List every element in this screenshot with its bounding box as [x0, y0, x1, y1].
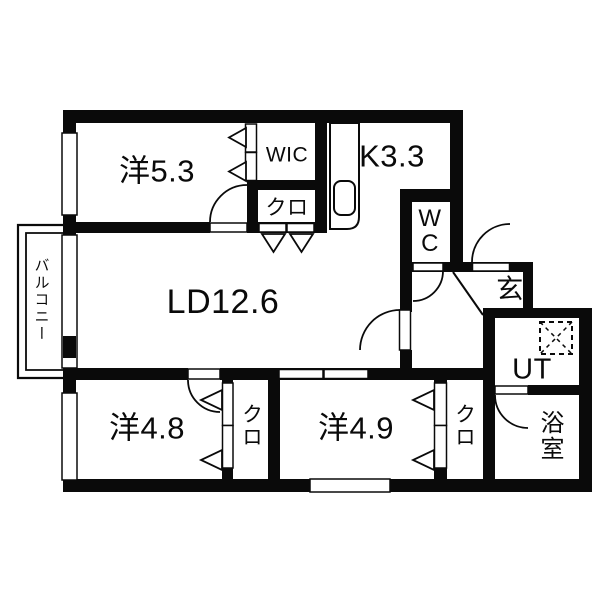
door-arc-bedroom53 — [210, 185, 247, 222]
door-arc-wc — [413, 271, 443, 301]
sliding-panel-closet-top-1 — [259, 224, 286, 233]
room-label-bathroom: 浴室 — [537, 410, 561, 462]
genkan-step-line — [453, 272, 483, 315]
room-label-utility: UT — [512, 356, 552, 385]
door-leaf-entrance — [473, 263, 510, 271]
arrow-closet49-2 — [413, 450, 434, 470]
sliding-leaf-closet49-1 — [435, 383, 447, 426]
sliding-panel-closet-top-2 — [287, 224, 314, 233]
window-bedroom53 — [62, 133, 77, 215]
wall-utility-bath-divider — [528, 385, 579, 395]
sliding-leaf-wic-1 — [246, 124, 257, 152]
room-label-balcony: バルコニー — [34, 258, 49, 343]
arrow-closet49-1 — [413, 390, 434, 410]
door-arc-entrance — [472, 224, 510, 262]
washer-pan-cross-1 — [540, 322, 572, 354]
wall-utility-top — [483, 308, 592, 318]
room-label-closet-4-8: クロ — [241, 403, 262, 449]
wall-wc-right — [450, 202, 463, 262]
door-arc-bathroom — [495, 395, 528, 428]
room-label-closet-4-9: クロ — [454, 403, 475, 449]
room-label-bedroom-4-8: 洋4.8 — [109, 413, 185, 444]
wall-kitchen-right — [450, 110, 463, 202]
sliding-leaf-closet49-2 — [435, 426, 447, 469]
wall-closet48-stub-bottom — [222, 468, 233, 492]
sliding-panel-ld-49-1 — [279, 370, 323, 379]
wall-ld-hall-upper — [400, 270, 412, 312]
door-leaf-bedroom48 — [188, 369, 220, 379]
arrow-closet-top-2 — [290, 234, 313, 252]
arrow-wic-1 — [229, 128, 246, 147]
wall-top — [63, 110, 463, 123]
door-leaf-wc — [413, 263, 443, 271]
window-bedroom49 — [310, 479, 390, 492]
wall-entrance-right — [523, 262, 533, 308]
sliding-leaf-closet48-1 — [223, 383, 234, 426]
wall-closet49-stub-top — [434, 368, 447, 383]
washer-pan-box — [540, 322, 572, 354]
room-label-wc: WC — [416, 206, 444, 256]
door-leaf-bedroom53 — [210, 223, 247, 232]
arrow-wic-2 — [229, 162, 246, 181]
wall-closet-top-left — [247, 180, 258, 233]
sink-icon — [334, 181, 355, 215]
wall-closet48-right — [268, 368, 280, 492]
room-label-entrance: 玄 — [496, 277, 524, 304]
arrow-closet48-2 — [201, 450, 222, 470]
washing-machine-pan-icon — [540, 322, 572, 354]
door-leaf-bathroom — [495, 386, 528, 394]
room-label-bedroom-5-3: 洋5.3 — [119, 156, 195, 187]
sliding-leaf-wic-2 — [246, 153, 257, 181]
arrow-closet-top-1 — [262, 234, 285, 252]
wall-utility-left — [483, 308, 495, 492]
wall-wc-left — [400, 189, 412, 270]
wall-right — [579, 308, 592, 492]
room-label-bedroom-4-9: 洋4.9 — [318, 413, 394, 444]
sliding-panel-ld-49-2 — [324, 370, 368, 379]
window-bedroom48 — [62, 393, 77, 480]
wall-closet49-stub-bottom — [434, 468, 447, 492]
wall-bedroom53-bottom — [63, 222, 210, 233]
room-label-living-dining: LD12.6 — [167, 285, 280, 319]
wall-closet48-stub-top — [222, 368, 233, 383]
sliding-leaf-closet48-2 — [223, 426, 234, 469]
balcony-window-mullion — [63, 336, 76, 358]
floor-plan: 洋5.3 WIC K3.3 クロ LD12.6 WC 玄 バルコニー UT 浴室… — [0, 0, 600, 600]
room-label-closet-top: クロ — [266, 198, 309, 219]
room-label-wic: WIC — [266, 145, 308, 166]
washer-pan-cross-2 — [540, 322, 572, 354]
wall-wic-kitchen-divider — [315, 110, 327, 233]
door-arc-ld-hall — [360, 310, 400, 350]
door-leaf-ld-hall — [400, 310, 411, 350]
room-label-kitchen: K3.3 — [359, 141, 425, 172]
wall-ld-bottom-left — [63, 368, 188, 380]
